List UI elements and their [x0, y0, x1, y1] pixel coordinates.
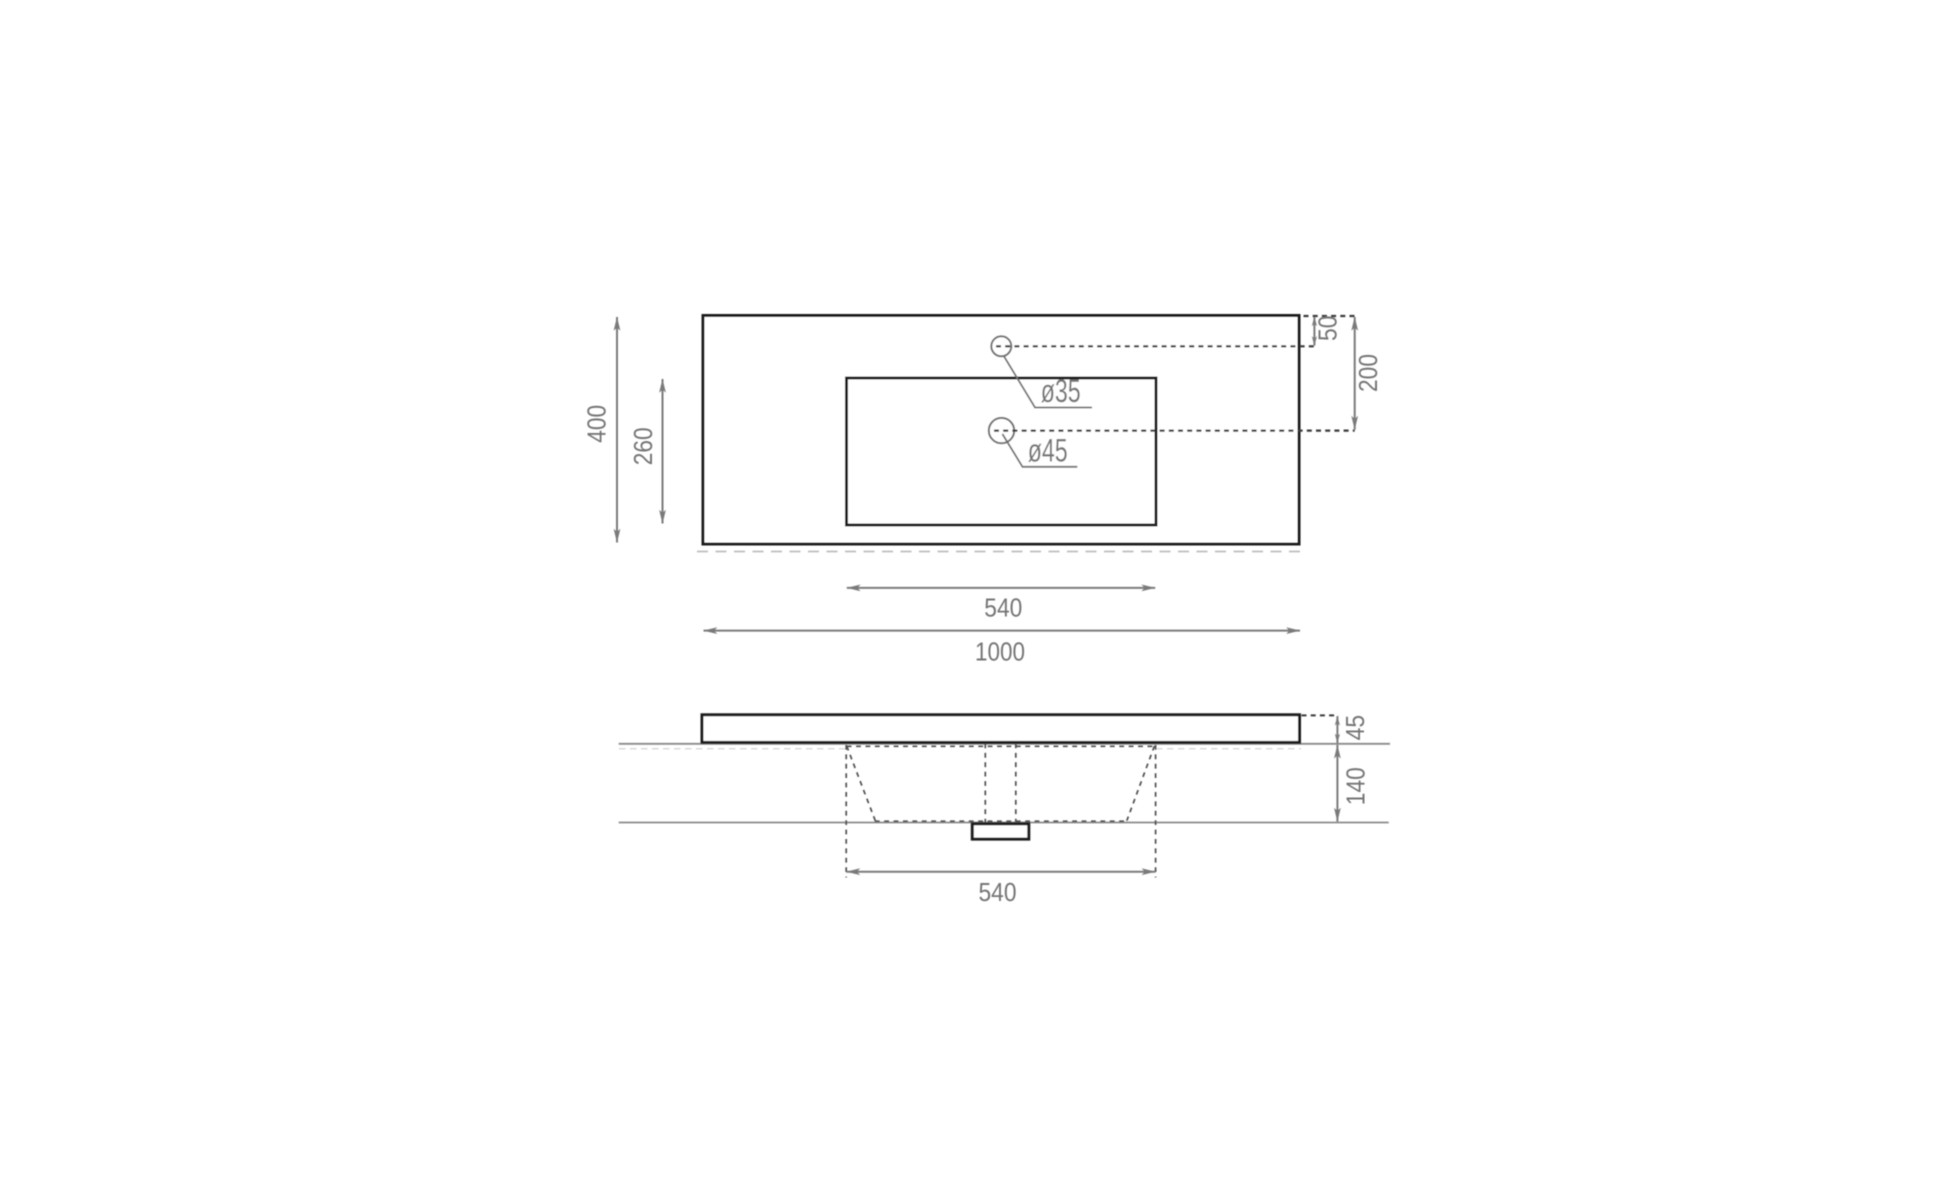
svg-text:540: 540 — [979, 877, 1017, 907]
svg-text:200: 200 — [1353, 354, 1383, 392]
svg-text:ø35: ø35 — [1041, 373, 1081, 409]
svg-text:400: 400 — [581, 405, 611, 443]
svg-text:ø45: ø45 — [1028, 432, 1068, 468]
svg-text:540: 540 — [984, 593, 1022, 623]
svg-text:140: 140 — [1341, 767, 1371, 805]
svg-text:1000: 1000 — [975, 637, 1025, 667]
svg-text:260: 260 — [628, 427, 658, 465]
svg-text:50: 50 — [1312, 316, 1342, 342]
svg-text:45: 45 — [1340, 715, 1370, 741]
